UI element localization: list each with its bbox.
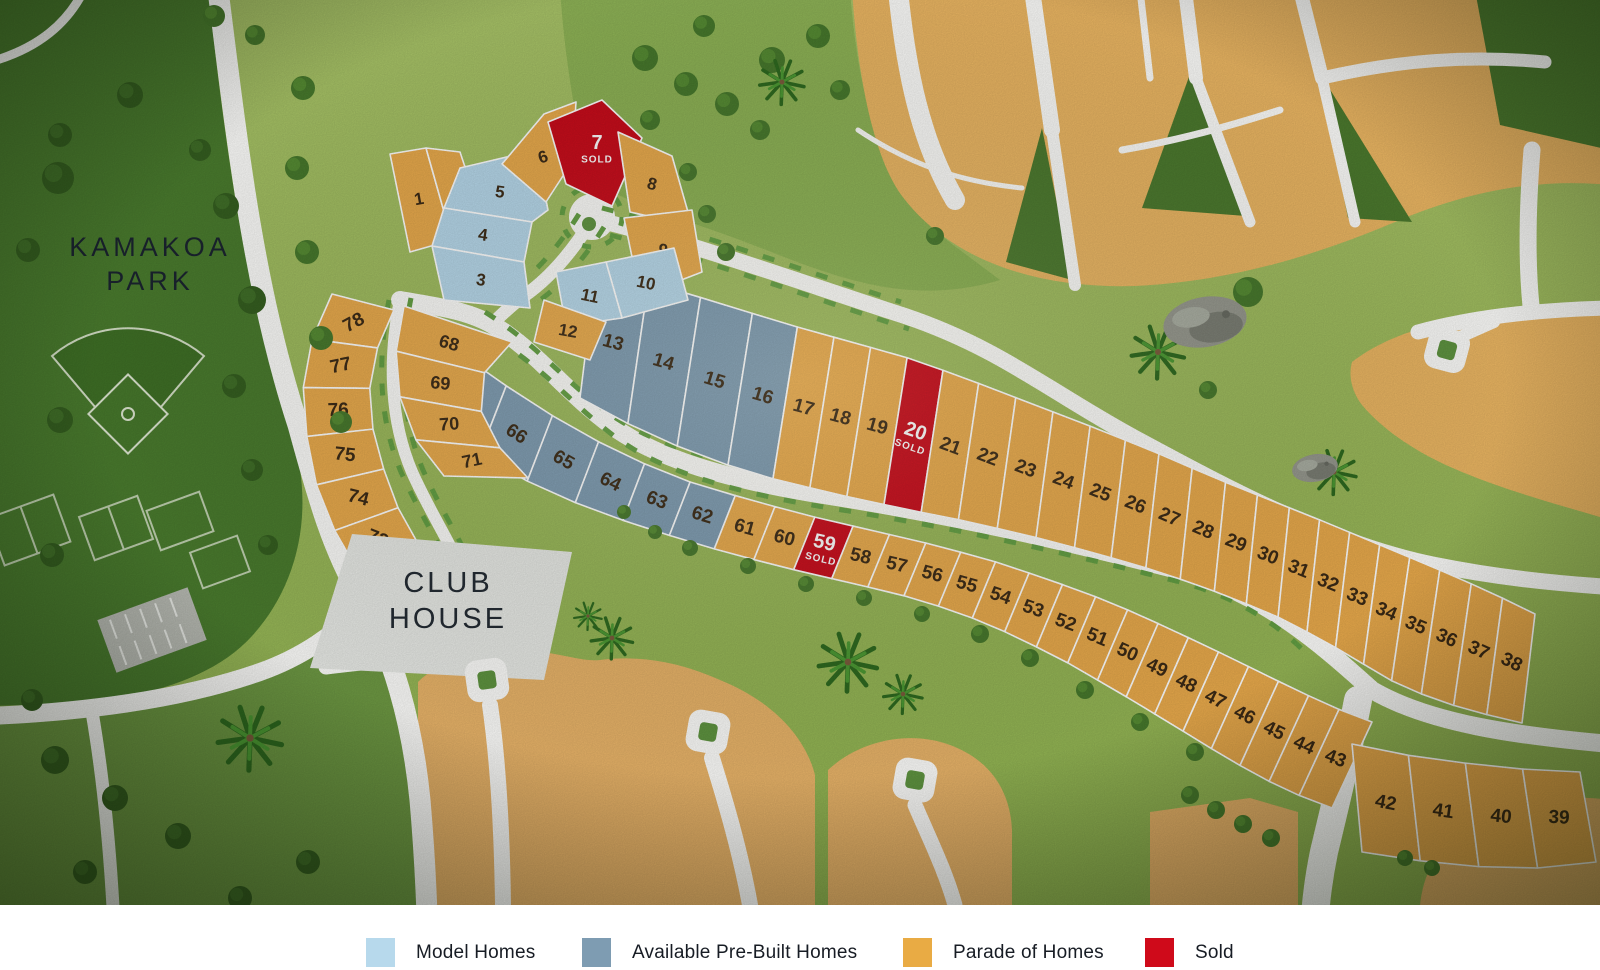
legend-item-sold: Sold bbox=[1145, 938, 1234, 967]
legend-label: Sold bbox=[1195, 942, 1234, 964]
site-map-svg: KAMAKOA PARK bbox=[0, 0, 1600, 905]
legend-item-parade: Parade of Homes bbox=[903, 938, 1104, 967]
community-map: KAMAKOA PARK bbox=[0, 0, 1600, 905]
sold-swatch bbox=[1145, 938, 1174, 967]
legend-label: Parade of Homes bbox=[953, 942, 1104, 964]
site-plan-page: KAMAKOA PARK bbox=[0, 0, 1600, 970]
prebuilt-homes-swatch bbox=[582, 938, 611, 967]
legend-item-prebuilt: Available Pre-Built Homes bbox=[582, 938, 857, 967]
legend: Model Homes Available Pre-Built Homes Pa… bbox=[0, 905, 1600, 970]
vignette bbox=[0, 0, 1600, 905]
parade-homes-swatch bbox=[903, 938, 932, 967]
model-homes-swatch bbox=[366, 938, 395, 967]
legend-label: Available Pre-Built Homes bbox=[632, 942, 857, 964]
legend-label: Model Homes bbox=[416, 942, 535, 964]
legend-item-model: Model Homes bbox=[366, 938, 535, 967]
